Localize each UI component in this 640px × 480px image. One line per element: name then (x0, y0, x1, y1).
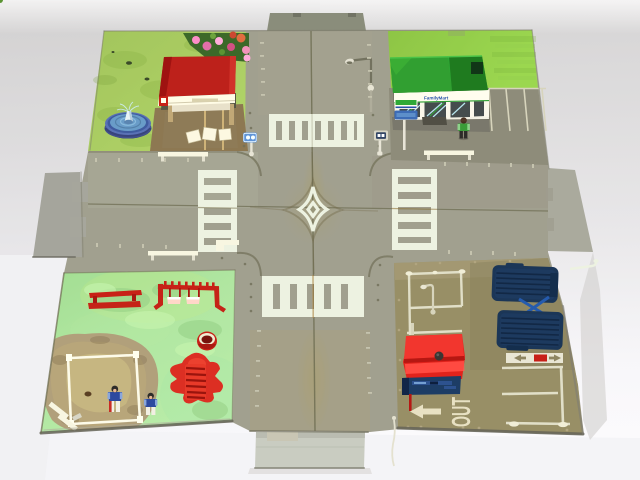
svg-text:FamilyMart: FamilyMart (424, 96, 449, 101)
svg-text:OUT: OUT (446, 397, 476, 427)
